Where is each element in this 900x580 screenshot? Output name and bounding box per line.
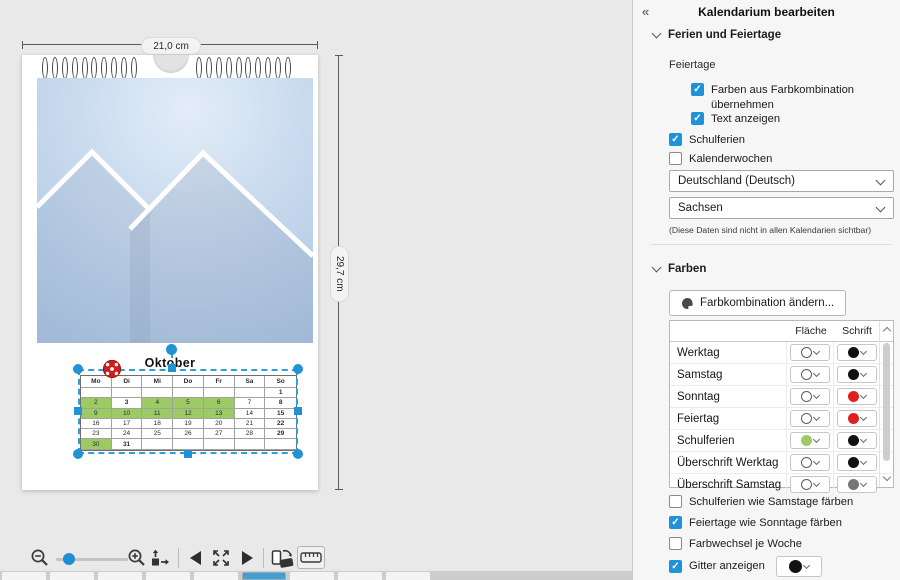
resize-handle-left[interactable] <box>74 407 82 415</box>
checkbox-gitter-anzeigen[interactable]: Gitter anzeigen <box>669 556 822 577</box>
chevron-down-icon <box>860 458 867 465</box>
checkbox-icon[interactable] <box>669 537 682 550</box>
canvas-toolbar <box>0 545 632 571</box>
color-table-row: Werktag <box>670 342 893 363</box>
color-picker[interactable] <box>790 432 830 449</box>
color-cell <box>786 430 833 451</box>
checkbox-icon[interactable] <box>691 112 704 125</box>
zoom-out-icon[interactable] <box>30 548 50 568</box>
color-picker[interactable] <box>790 476 830 493</box>
column-flaeche: Fläche <box>788 325 834 337</box>
color-picker[interactable] <box>837 344 877 361</box>
color-swatch <box>848 347 859 358</box>
color-swatch <box>789 560 802 573</box>
resize-handle-bottom-right[interactable] <box>293 449 303 459</box>
visibility-note: (Diese Daten sind nicht in allen Kalenda… <box>669 225 871 235</box>
chevron-down-icon <box>813 348 820 355</box>
color-cell <box>833 386 880 407</box>
chevron-down-icon <box>652 29 662 39</box>
color-swatch <box>848 457 859 468</box>
color-cell <box>833 474 880 495</box>
chevron-down-icon <box>876 203 886 213</box>
color-table-header: Fläche Schrift <box>670 321 893 342</box>
chevron-down-icon <box>652 263 662 273</box>
color-table-row: Schulferien <box>670 429 893 451</box>
color-table-row: Sonntag <box>670 385 893 407</box>
photo-placeholder[interactable] <box>37 78 313 343</box>
chevron-down-icon <box>813 392 820 399</box>
color-row-label: Überschrift Samstag <box>670 479 786 491</box>
chevron-down-icon <box>860 480 867 487</box>
scroll-down-icon[interactable] <box>882 473 890 481</box>
checkbox-icon[interactable] <box>669 516 682 529</box>
section-ferien-header[interactable]: Ferien und Feiertage <box>653 29 781 41</box>
chevron-down-icon <box>860 392 867 399</box>
color-picker[interactable] <box>790 344 830 361</box>
color-picker[interactable] <box>837 454 877 471</box>
checkbox-icon[interactable] <box>669 495 682 508</box>
export-pages-icon[interactable] <box>150 548 171 568</box>
resize-handle-top-left[interactable] <box>73 364 83 374</box>
color-cell <box>786 408 833 429</box>
scrollbar-thumb[interactable] <box>883 343 890 461</box>
page-thumbnail[interactable] <box>2 572 46 580</box>
color-picker[interactable] <box>790 410 830 427</box>
color-swatch <box>848 369 859 380</box>
section-farben-header[interactable]: Farben <box>653 263 706 275</box>
page-thumbnail[interactable] <box>50 572 94 580</box>
resize-handle-top[interactable] <box>168 364 176 372</box>
color-picker[interactable] <box>837 388 877 405</box>
toggle-orientation-icon[interactable] <box>271 548 295 569</box>
checkbox-icon[interactable] <box>669 152 682 165</box>
scroll-up-icon[interactable] <box>882 327 890 335</box>
color-cell <box>833 430 880 451</box>
color-cell <box>833 408 880 429</box>
height-measure-label: 29,7 cm <box>330 246 349 302</box>
chevron-down-icon <box>813 458 820 465</box>
color-swatch <box>848 435 859 446</box>
resize-handle-bottom[interactable] <box>184 450 192 458</box>
color-picker[interactable] <box>837 476 877 493</box>
color-swatch <box>801 435 812 446</box>
chevron-down-icon <box>860 414 867 421</box>
table-scrollbar[interactable] <box>879 321 893 487</box>
color-row-label: Überschrift Werktag <box>670 457 786 469</box>
next-page-icon[interactable] <box>242 551 253 565</box>
color-cell <box>786 364 833 385</box>
checkbox-kalenderwochen[interactable]: Kalenderwochen <box>669 152 772 167</box>
color-cell <box>786 474 833 495</box>
panel-title: Kalendarium bearbeiten <box>633 5 900 19</box>
page-thumbnail[interactable] <box>98 572 142 580</box>
zoom-in-icon[interactable] <box>127 548 147 568</box>
checkbox-farbwechsel[interactable]: Farbwechsel je Woche <box>669 537 802 552</box>
color-row-label: Feiertag <box>670 413 786 425</box>
chevron-down-icon <box>813 436 820 443</box>
color-swatch <box>848 479 859 490</box>
feiertage-label: Feiertage <box>669 59 715 71</box>
previous-page-icon[interactable] <box>190 551 201 565</box>
page-thumbnail[interactable] <box>386 572 430 580</box>
page-thumbnail-strip <box>0 571 632 580</box>
spiral-binding-right <box>196 57 295 79</box>
page-thumbnail-selected[interactable] <box>242 572 286 580</box>
zoom-slider-knob[interactable] <box>63 553 75 565</box>
ruler-icon <box>300 551 322 564</box>
resize-handle-bottom-left[interactable] <box>73 449 83 459</box>
calendar-editor-window: 21,0 cm 29,7 cm Oktober MoDiMiDoFrSaSo12… <box>0 0 900 580</box>
chevron-down-icon <box>876 176 886 186</box>
chevron-down-icon <box>803 562 810 569</box>
checkbox-feiertage-wie-sonntage[interactable]: Feiertage wie Sonntage färben <box>669 516 842 531</box>
color-table: Fläche Schrift WerktagSamstagSonntagFeie… <box>669 320 894 488</box>
color-swatch <box>848 391 859 402</box>
color-swatch <box>801 479 812 490</box>
checkbox-icon[interactable] <box>691 83 704 96</box>
color-swatch <box>801 457 812 468</box>
country-select[interactable]: Deutschland (Deutsch) <box>669 170 894 192</box>
color-table-row: Samstag <box>670 363 893 385</box>
color-table-row: Überschrift Werktag <box>670 451 893 473</box>
delete-wheel-icon[interactable] <box>102 359 122 379</box>
show-ruler-button[interactable] <box>297 546 325 569</box>
palette-icon <box>681 297 694 310</box>
color-swatch <box>801 413 812 424</box>
checkbox-schulferien-wie-samstage[interactable]: Schulferien wie Samstage färben <box>669 495 853 510</box>
color-cell <box>833 452 880 473</box>
color-table-row: Überschrift Samstag <box>670 473 893 495</box>
color-picker[interactable] <box>790 366 830 383</box>
resize-handle-top-right[interactable] <box>293 364 303 374</box>
change-color-combination-button[interactable]: Farbkombination ändern... <box>669 290 846 316</box>
checkbox-text-anzeigen[interactable]: Text anzeigen <box>691 112 780 127</box>
chevron-down-icon <box>860 370 867 377</box>
color-row-label: Werktag <box>670 347 786 359</box>
spiral-binding-left <box>42 57 141 79</box>
color-picker[interactable] <box>837 366 877 383</box>
color-cell <box>786 386 833 407</box>
selection-outline <box>78 369 298 454</box>
color-cell <box>833 342 880 363</box>
color-row-label: Sonntag <box>670 391 786 403</box>
color-row-label: Samstag <box>670 369 786 381</box>
chevron-down-icon <box>813 414 820 421</box>
color-cell <box>786 452 833 473</box>
color-picker[interactable] <box>790 454 830 471</box>
section-divider <box>651 244 891 245</box>
color-picker[interactable] <box>837 410 877 427</box>
resize-handle-right[interactable] <box>294 407 302 415</box>
fit-to-window-icon[interactable] <box>211 548 231 568</box>
checkbox-icon[interactable] <box>669 133 682 146</box>
chevron-down-icon <box>860 348 867 355</box>
color-row-label: Schulferien <box>670 435 786 447</box>
checkbox-schulferien[interactable]: Schulferien <box>669 133 745 148</box>
chevron-down-icon <box>813 480 820 487</box>
design-canvas: 21,0 cm 29,7 cm Oktober MoDiMiDoFrSaSo12… <box>0 0 632 580</box>
page-thumbnail[interactable] <box>290 572 334 580</box>
color-swatch <box>801 347 812 358</box>
width-measure-label: 21,0 cm <box>141 37 201 55</box>
color-swatch <box>801 391 812 402</box>
color-table-row: Feiertag <box>670 407 893 429</box>
column-schrift: Schrift <box>834 325 880 337</box>
region-select[interactable]: Sachsen <box>669 197 894 219</box>
page-thumbnail[interactable] <box>338 572 382 580</box>
chevron-down-icon <box>860 436 867 443</box>
color-cell <box>786 342 833 363</box>
grid-color-picker[interactable] <box>776 556 822 577</box>
checkbox-farben-uebernehmen[interactable]: Farben aus Farbkombination übernehmen <box>691 83 863 113</box>
rotate-handle[interactable] <box>166 344 177 355</box>
color-swatch <box>848 413 859 424</box>
color-swatch <box>801 369 812 380</box>
checkbox-icon[interactable] <box>669 560 682 573</box>
chevron-down-icon <box>813 370 820 377</box>
settings-panel: « Kalendarium bearbeiten Ferien und Feie… <box>632 0 900 580</box>
color-picker[interactable] <box>790 388 830 405</box>
page-thumbnail[interactable] <box>194 572 238 580</box>
color-cell <box>833 364 880 385</box>
color-picker[interactable] <box>837 432 877 449</box>
page-thumbnail[interactable] <box>146 572 190 580</box>
